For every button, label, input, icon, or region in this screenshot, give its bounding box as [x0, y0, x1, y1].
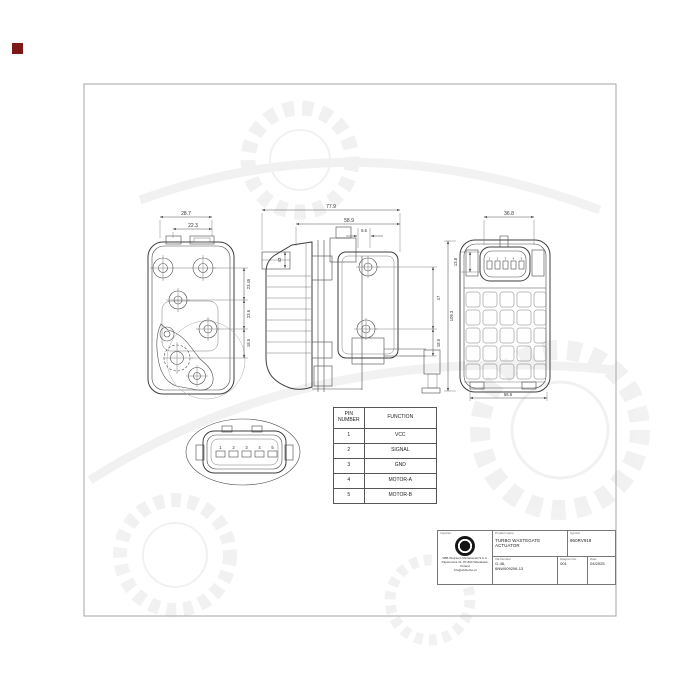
technical-drawing: 1 2 3 4 5 — [0, 0, 700, 700]
company-logo — [455, 536, 475, 556]
dim-back-connector-height: 13.8 — [453, 257, 458, 266]
dim-back-connector-width: 36.8 — [504, 211, 514, 217]
dim-side-body-width: 58.9 — [344, 218, 354, 224]
pin-number: 3 — [505, 257, 507, 261]
diagram-no-cell: Diagram No. 001 — [557, 557, 587, 584]
title-block: Importer SBB Wojciech Michałowski S.K.A.… — [437, 530, 616, 585]
pin-number: 1 — [219, 445, 222, 450]
table-header-row: PIN NUMBER FUNCTION — [334, 408, 437, 429]
pin-cell: 1 — [334, 429, 365, 444]
rod-block — [352, 338, 384, 364]
dimensions: 28.7 22.3 23.45 23.6 18.5 77.9 58.9 6.5 … — [160, 204, 547, 401]
dim-side-total-width: 77.9 — [326, 204, 336, 210]
function-cell: MOTOR-B — [364, 489, 436, 504]
product-name-cell: Product name TURBO WASTEGATE ACTUATOR — [493, 531, 567, 556]
pin-cell: 3 — [334, 459, 365, 474]
pin-number: 2 — [497, 257, 499, 261]
function-cell: SIGNAL — [364, 444, 436, 459]
pin-number: 1 — [489, 257, 491, 261]
pin-function-table: PIN NUMBER FUNCTION 1 VCC 2 SIGNAL 3 GND… — [333, 407, 437, 504]
oe-number-line2: 6NW009206-13 — [495, 566, 555, 571]
oe-number-cell: OE Number G-48, 6NW009206-13 — [493, 557, 557, 584]
symbol-cell: Symbol 960RV918 — [567, 531, 615, 556]
symbol-value: 960RV918 — [570, 538, 613, 543]
dim-front-span-top: 23.45 — [246, 278, 251, 289]
pin-number: 2 — [232, 445, 235, 450]
dim-side-port-height: 43 — [277, 257, 282, 262]
importer-address-line: info@sbbturbo.pl — [440, 569, 490, 573]
importer-address-line: Papiernicza 31, 87-800 Włocławek, Poland — [440, 561, 490, 568]
dim-side-hole-span: 47 — [436, 295, 441, 300]
detail-pins — [216, 451, 277, 457]
pin-number: 5 — [521, 257, 523, 261]
drawing-sheet: { "colors": { "background": "#ffffff", "… — [0, 0, 700, 700]
pin-number: 5 — [271, 445, 274, 450]
table-row: 4 MOTOR-A — [334, 474, 437, 489]
cap-ribs — [267, 276, 311, 353]
dim-front-span-bottom: 18.5 — [246, 338, 251, 347]
dim-side-rod-offset: 18.5 — [436, 338, 441, 347]
pin-cell: 5 — [334, 489, 365, 504]
connector-detail: 1 2 3 4 5 — [186, 419, 300, 485]
tower-cap — [336, 227, 351, 238]
importer-cell: Importer SBB Wojciech Michałowski S.K.A.… — [438, 531, 492, 584]
dim-front-span-mid: 23.6 — [246, 309, 251, 318]
diagram-no-value: 001 — [560, 561, 585, 566]
pin-cell: 4 — [334, 474, 365, 489]
table-row: 3 GND — [334, 459, 437, 474]
flange-boss — [357, 258, 377, 338]
function-cell: GND — [364, 459, 436, 474]
product-name: TURBO WASTEGATE ACTUATOR — [495, 538, 565, 548]
function-header: FUNCTION — [364, 408, 436, 429]
dim-back-bottom-width: 56.6 — [504, 392, 513, 397]
function-cell: MOTOR-A — [364, 474, 436, 489]
dim-front-inner-width: 22.3 — [188, 223, 198, 229]
ribbed-cap — [266, 242, 312, 389]
connector-pins — [487, 261, 524, 269]
table-row: 5 MOTOR-B — [334, 489, 437, 504]
pin-number: 4 — [258, 445, 261, 450]
pin-cell: 2 — [334, 444, 365, 459]
front-view — [148, 236, 245, 399]
pin-number: 3 — [245, 445, 248, 450]
product-name-label: Product name — [495, 532, 565, 536]
table-row: 2 SIGNAL — [334, 444, 437, 459]
dim-back-total-height: 109.3 — [449, 310, 454, 321]
function-cell: VCC — [364, 429, 436, 444]
table-row: 1 VCC — [334, 429, 437, 444]
symbol-label: Symbol — [570, 532, 613, 536]
dim-front-total-width: 28.7 — [181, 211, 191, 217]
top-tab — [190, 236, 214, 244]
pin-number-header: PIN NUMBER — [334, 408, 365, 429]
dim-side-step: 6.5 — [361, 228, 367, 233]
pin-number: 4 — [513, 257, 515, 261]
top-tab — [166, 236, 181, 244]
date-value: 04/2025 — [590, 561, 613, 566]
date-cell: Date 04/2025 — [587, 557, 615, 584]
